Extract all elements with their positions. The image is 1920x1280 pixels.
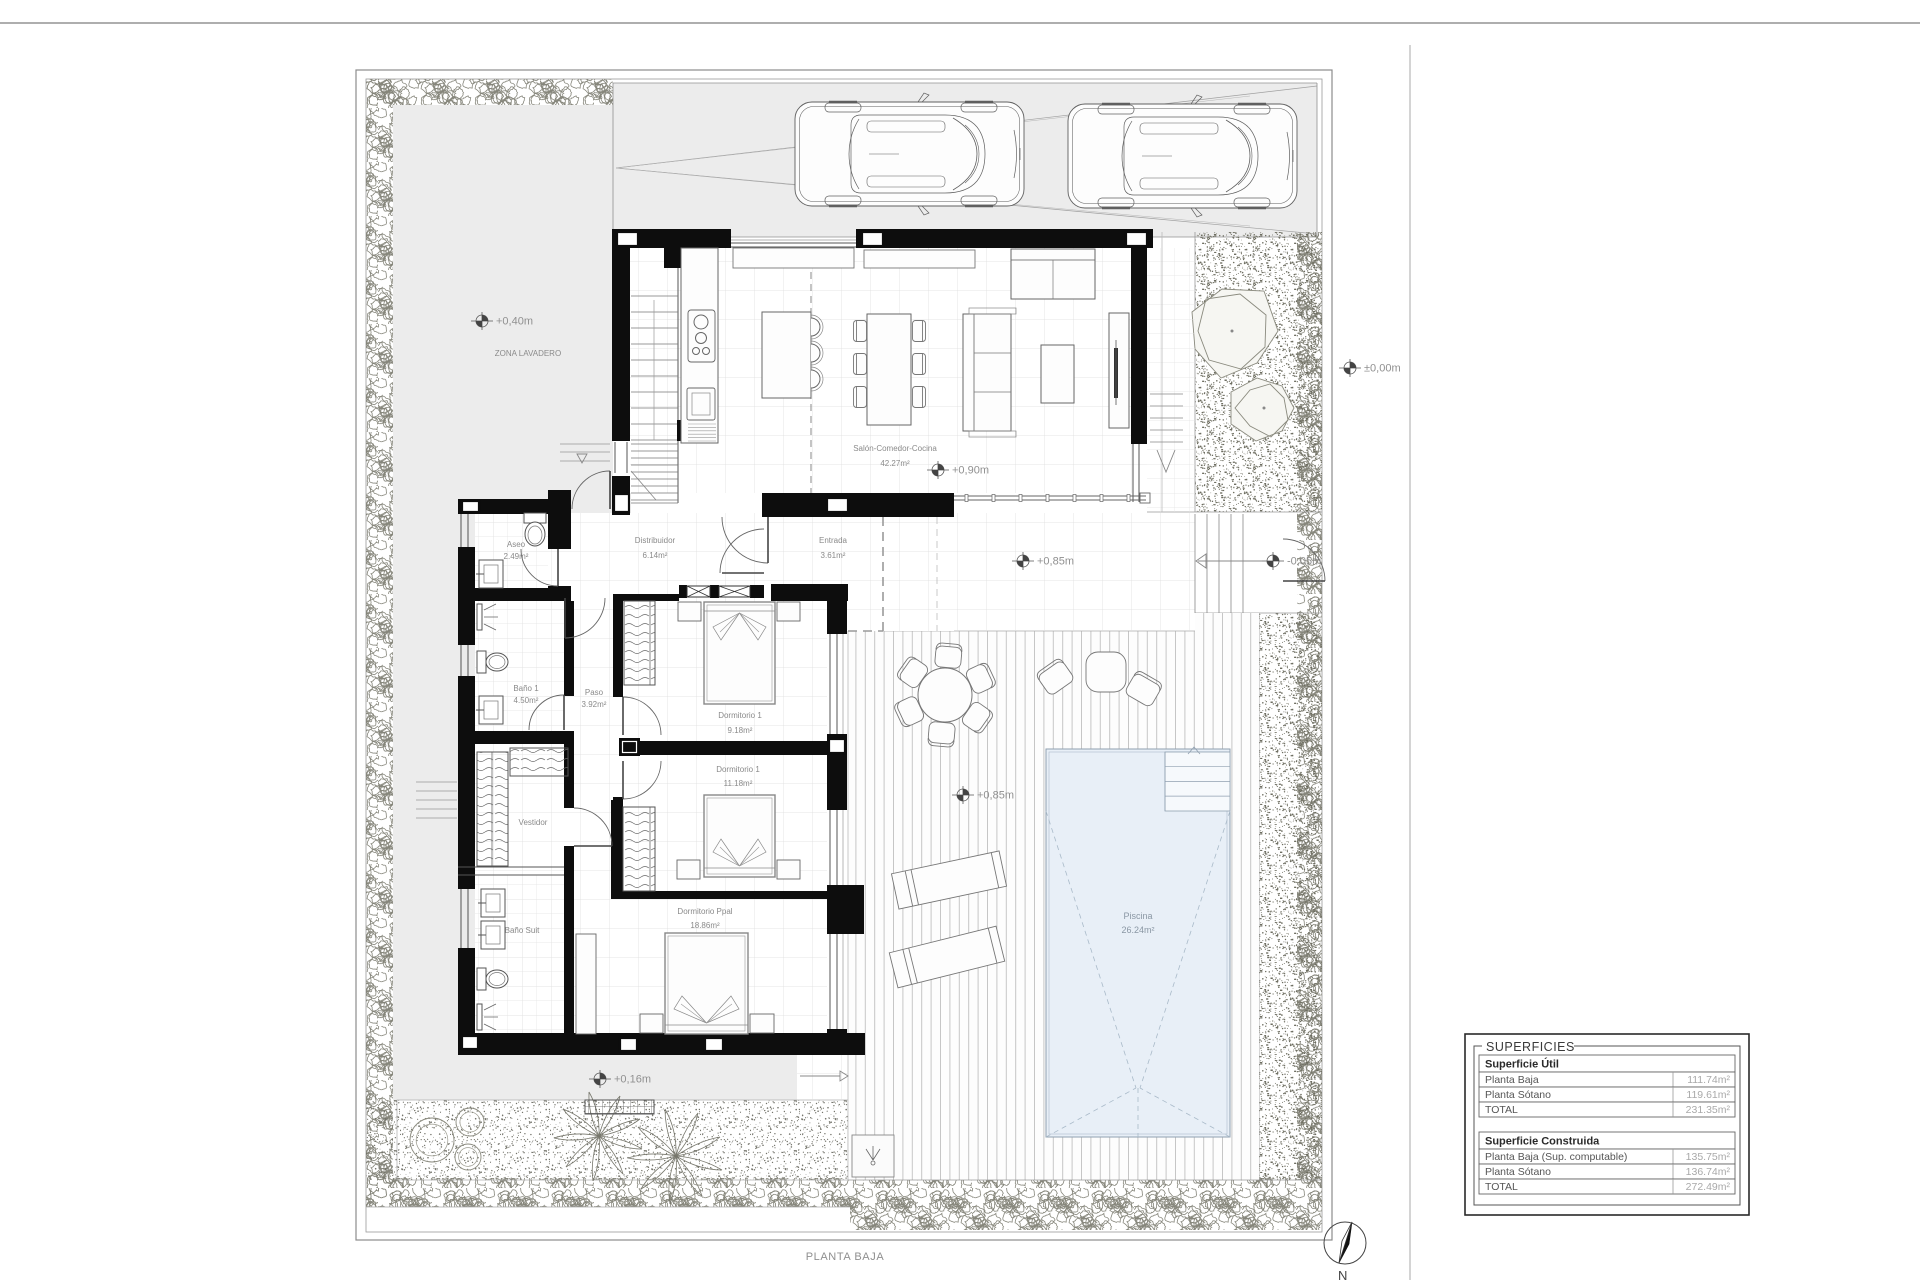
- svg-text:3.61m²: 3.61m²: [821, 551, 846, 560]
- svg-text:N: N: [1338, 1268, 1347, 1280]
- svg-text:272.49m²: 272.49m²: [1686, 1181, 1731, 1193]
- svg-text:119.61m²: 119.61m²: [1686, 1089, 1730, 1101]
- svg-text:11.18m²: 11.18m²: [724, 779, 753, 788]
- svg-text:Dormitorio 1: Dormitorio 1: [718, 711, 762, 720]
- svg-text:Entrada: Entrada: [819, 536, 848, 545]
- svg-text:SUPERFICIES: SUPERFICIES: [1486, 1040, 1575, 1054]
- svg-text:Aseo: Aseo: [507, 540, 526, 549]
- svg-text:Planta Sótano: Planta Sótano: [1485, 1166, 1551, 1178]
- svg-text:+0,90m: +0,90m: [952, 465, 989, 477]
- svg-text:Superficie Útil: Superficie Útil: [1485, 1058, 1559, 1071]
- svg-text:42.27m²: 42.27m²: [880, 459, 910, 468]
- svg-text:Superficie Construida: Superficie Construida: [1485, 1136, 1600, 1148]
- svg-text:26.24m²: 26.24m²: [1121, 925, 1154, 935]
- svg-text:9.18m²: 9.18m²: [728, 726, 753, 735]
- svg-text:135.75m²: 135.75m²: [1686, 1151, 1731, 1163]
- svg-text:+0,85m: +0,85m: [1037, 556, 1074, 568]
- svg-text:Baño Suit: Baño Suit: [505, 926, 540, 935]
- svg-text:PLANTA BAJA: PLANTA BAJA: [806, 1251, 885, 1263]
- svg-text:TOTAL: TOTAL: [1485, 1104, 1518, 1116]
- svg-text:231.35m²: 231.35m²: [1686, 1104, 1731, 1116]
- svg-text:Dormitorio Ppal: Dormitorio Ppal: [677, 907, 732, 916]
- svg-text:111.74m²: 111.74m²: [1687, 1074, 1730, 1086]
- svg-text:-0,05m: -0,05m: [1287, 556, 1321, 568]
- svg-text:±0,00m: ±0,00m: [1364, 363, 1401, 375]
- svg-text:136.74m²: 136.74m²: [1686, 1166, 1731, 1178]
- svg-text:Planta Sótano: Planta Sótano: [1485, 1089, 1551, 1101]
- svg-text:Planta Baja (Sup. computable): Planta Baja (Sup. computable): [1485, 1151, 1627, 1163]
- svg-text:6.14m²: 6.14m²: [643, 551, 668, 560]
- svg-text:18.86m²: 18.86m²: [690, 921, 720, 930]
- svg-text:ZONA LAVADERO: ZONA LAVADERO: [495, 349, 561, 358]
- svg-text:2.49m²: 2.49m²: [504, 552, 529, 561]
- svg-text:3.92m²: 3.92m²: [582, 700, 607, 709]
- svg-text:Vestidor: Vestidor: [519, 818, 548, 827]
- svg-text:Baño 1: Baño 1: [513, 684, 539, 693]
- svg-text:Paso: Paso: [585, 688, 604, 697]
- svg-text:TOTAL: TOTAL: [1485, 1181, 1518, 1193]
- svg-text:+0,85m: +0,85m: [977, 790, 1014, 802]
- svg-text:Planta Baja: Planta Baja: [1485, 1074, 1539, 1086]
- svg-text:+0,40m: +0,40m: [496, 316, 533, 328]
- svg-text:4.50m²: 4.50m²: [514, 696, 539, 705]
- svg-text:+0,16m: +0,16m: [614, 1074, 651, 1086]
- svg-text:Distribuidor: Distribuidor: [635, 536, 676, 545]
- svg-text:Piscina: Piscina: [1123, 911, 1152, 921]
- svg-text:Salón-Comedor-Cocina: Salón-Comedor-Cocina: [853, 444, 937, 453]
- svg-text:Dormitorio 1: Dormitorio 1: [716, 765, 760, 774]
